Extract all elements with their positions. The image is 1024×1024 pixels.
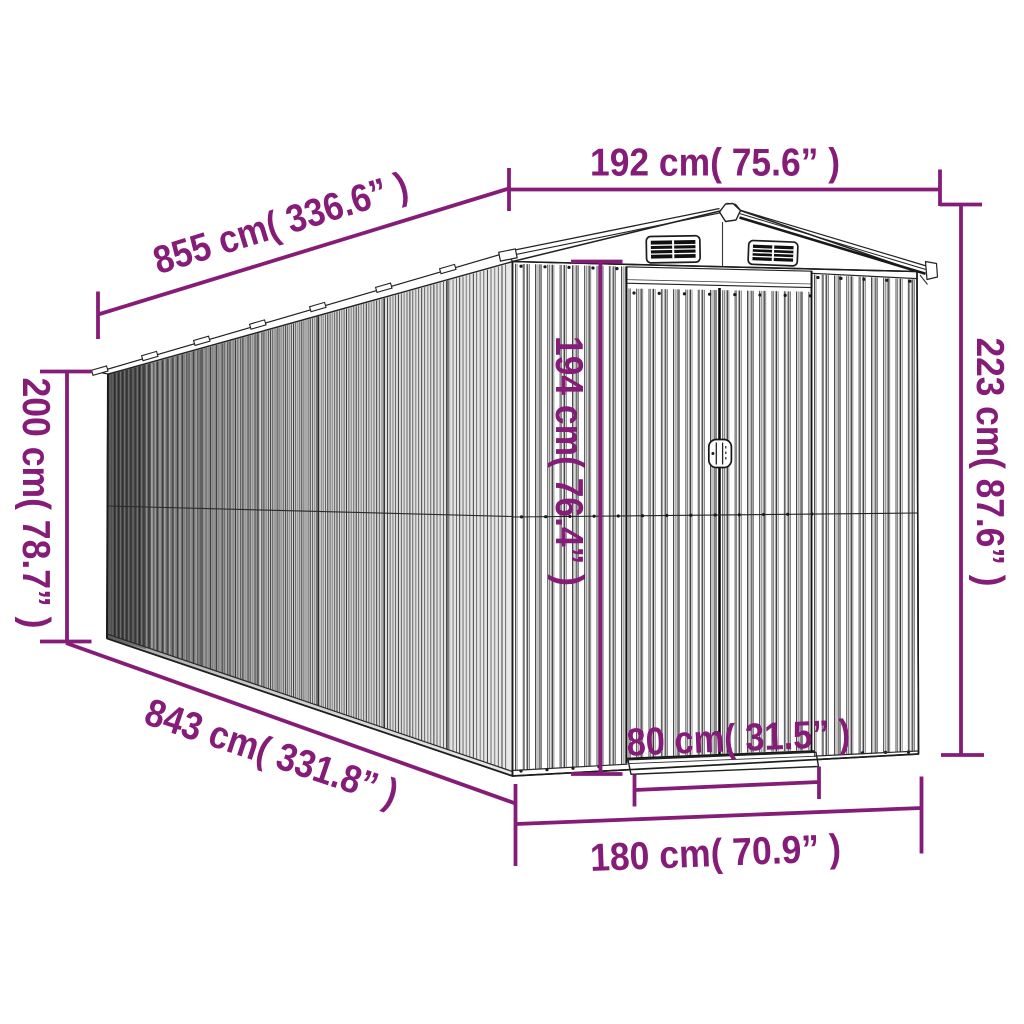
svg-text:192 cm( 75.6” ): 192 cm( 75.6” ) [590,142,840,185]
svg-text:223 cm( 87.6” ): 223 cm( 87.6” ) [968,338,1011,587]
svg-text:200 cm( 78.7” ): 200 cm( 78.7” ) [14,378,57,629]
svg-text:194 cm( 76.4” ): 194 cm( 76.4” ) [547,336,590,586]
